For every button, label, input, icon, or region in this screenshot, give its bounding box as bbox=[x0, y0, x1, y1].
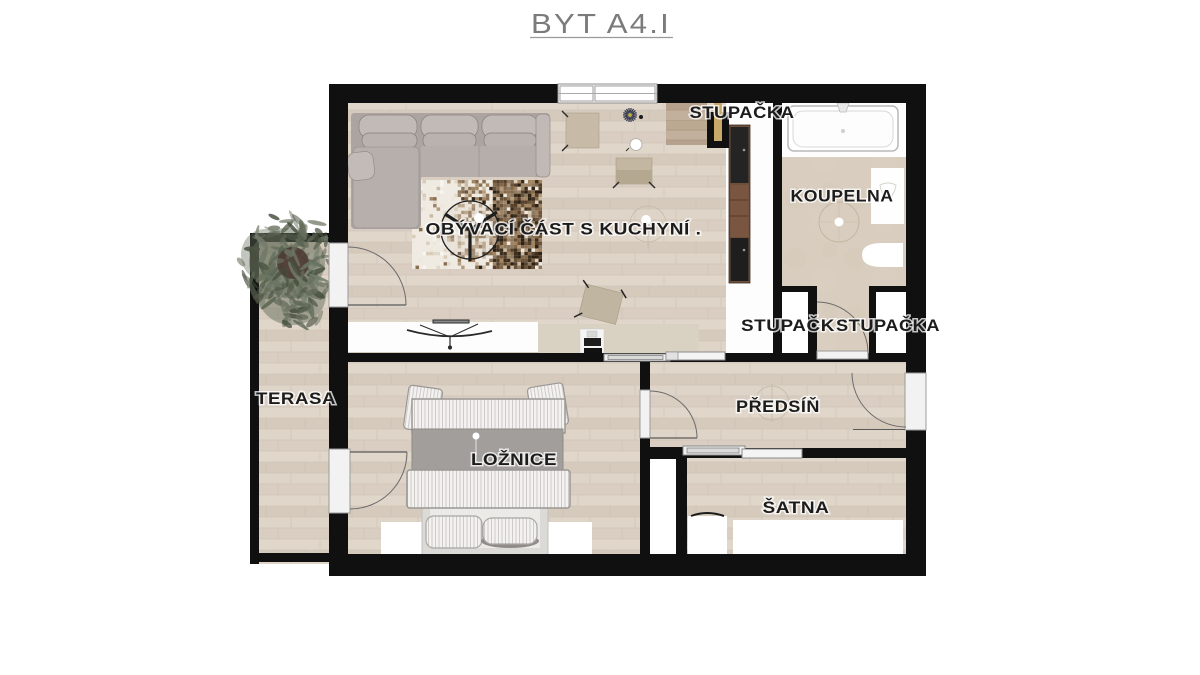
svg-text:LOŽNICE: LOŽNICE bbox=[471, 450, 557, 469]
svg-text:KOUPELNA: KOUPELNA bbox=[791, 187, 894, 206]
svg-text:TERASA: TERASA bbox=[256, 389, 336, 408]
svg-text:ŠATNA: ŠATNA bbox=[763, 498, 830, 517]
svg-text:STUPAČKA: STUPAČKA bbox=[836, 316, 940, 335]
svg-text:STUPAČKA: STUPAČKA bbox=[690, 103, 795, 122]
svg-text:OBÝVACÍ ČÁST S KUCHYNÍ .: OBÝVACÍ ČÁST S KUCHYNÍ . bbox=[426, 220, 702, 239]
svg-text:STUPAČK: STUPAČK bbox=[741, 316, 835, 335]
svg-text:PŘEDSÍŇ: PŘEDSÍŇ bbox=[736, 397, 820, 416]
svg-text:BYT A4.I: BYT A4.I bbox=[531, 8, 671, 39]
